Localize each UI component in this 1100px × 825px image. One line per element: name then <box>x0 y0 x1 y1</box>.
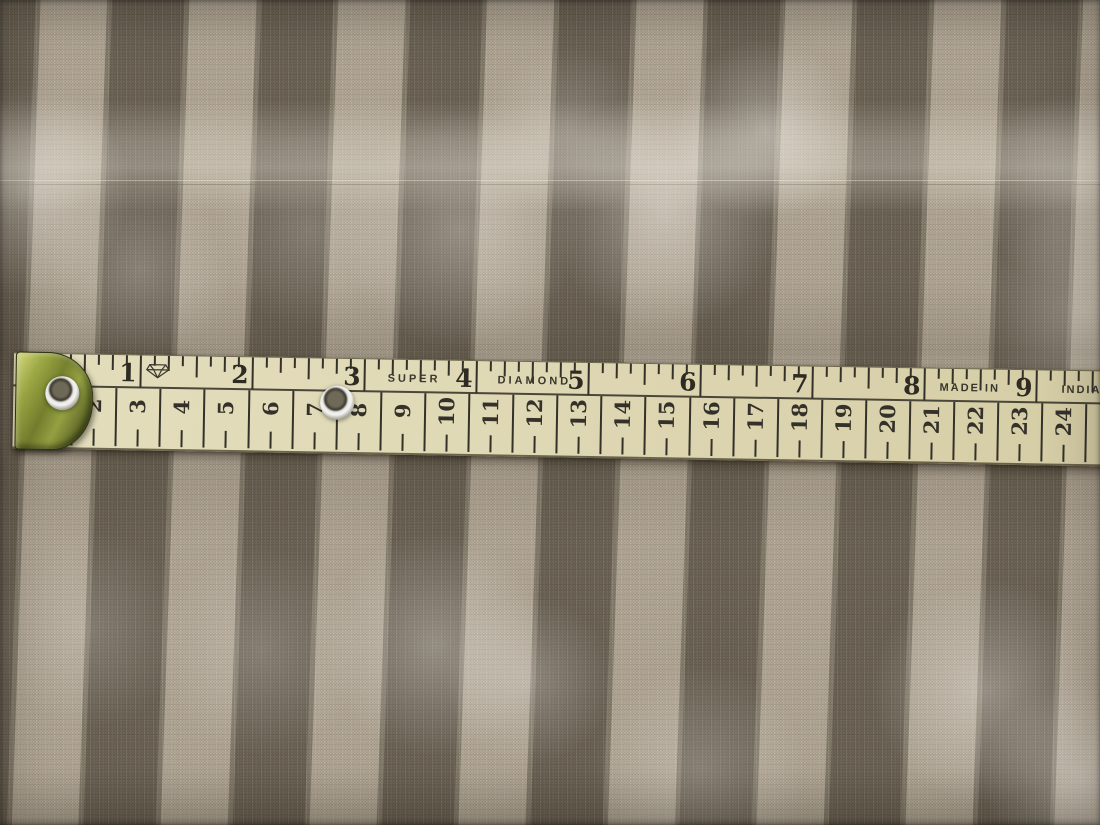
fabric-photo: 1234567892345678910111213141516171819202… <box>0 0 1100 825</box>
photo-vignette <box>0 0 1100 825</box>
